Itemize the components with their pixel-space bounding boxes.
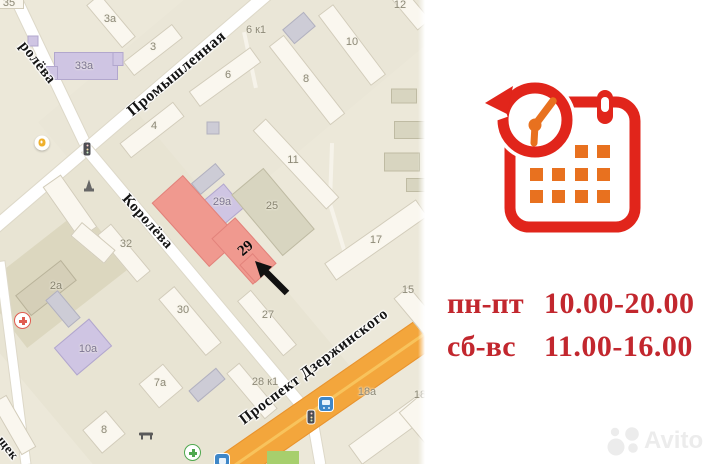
clock-icon: [485, 79, 576, 161]
calendar-clock-icon: [478, 63, 648, 235]
map-arrow-icon: [246, 250, 294, 298]
traffic-light-icon: [308, 411, 315, 424]
map-building-number: 8: [101, 424, 107, 436]
map-building-number: 3а: [104, 13, 116, 25]
map-building-number: 15: [402, 284, 414, 296]
map-building-number: 10а: [79, 343, 97, 355]
map-building-number: 8: [303, 73, 309, 85]
listing-image: 29353а33а36 к164810121129а251715322а3010…: [0, 0, 720, 464]
map-building-number: 27: [262, 309, 274, 321]
poi-yellow-icon: [35, 136, 50, 151]
map-building-number: 2а: [50, 280, 62, 292]
map-building-number: 4: [151, 120, 157, 132]
pharmacy-icon: [184, 444, 202, 462]
bus-stop-icon: [319, 397, 333, 411]
map-building-number: 6: [225, 69, 231, 81]
weekend-time-label: 11.00-16.00: [544, 325, 693, 368]
map-green-area: [267, 451, 299, 464]
shop-blue-icon: [215, 454, 229, 464]
map-building: [391, 89, 417, 104]
avito-logo-icon: [606, 424, 642, 458]
map-building-number: 6 к1: [246, 24, 266, 36]
map-building: [113, 52, 124, 66]
map-building-number: 12: [394, 0, 406, 11]
map-building-number: 32: [120, 238, 132, 250]
opening-hours-text: пн-пт 10.00-20.00 сб-вс 11.00-16.00: [447, 282, 695, 368]
hours-panel: [425, 0, 720, 464]
map-building-number: 7а: [154, 377, 166, 389]
map-edge-fade: [418, 0, 425, 464]
map-building-number: 33а: [75, 60, 93, 72]
map-building-number: 35: [3, 0, 15, 9]
map-building: [384, 153, 420, 172]
hospital-icon: [14, 312, 32, 330]
map-building-number: 17: [370, 234, 382, 246]
traffic-light-icon: [84, 143, 91, 156]
map-building: [207, 122, 220, 135]
avito-watermark: Avito: [606, 424, 703, 458]
bench-icon: [139, 431, 153, 440]
map-building-number: 3: [150, 41, 156, 53]
weekend-range-label: сб-вс: [447, 325, 544, 368]
weekday-range-label: пн-пт: [447, 282, 544, 325]
weekday-time-label: 10.00-20.00: [544, 282, 695, 325]
map-pane: 29353а33а36 к164810121129а251715322а3010…: [0, 0, 425, 464]
map-building-number: 10: [346, 36, 358, 48]
hours-row-weekdays: пн-пт 10.00-20.00: [447, 282, 695, 325]
map-building-number: 29а: [213, 196, 231, 208]
map-building-number: 30: [177, 304, 189, 316]
monument-icon: [84, 180, 94, 193]
map-building-number: 18а: [358, 386, 376, 398]
avito-wordmark: Avito: [644, 427, 703, 455]
map-building-number: 11: [287, 154, 298, 166]
hours-row-weekend: сб-вс 11.00-16.00: [447, 325, 695, 368]
map-building-number: 25: [266, 200, 278, 212]
